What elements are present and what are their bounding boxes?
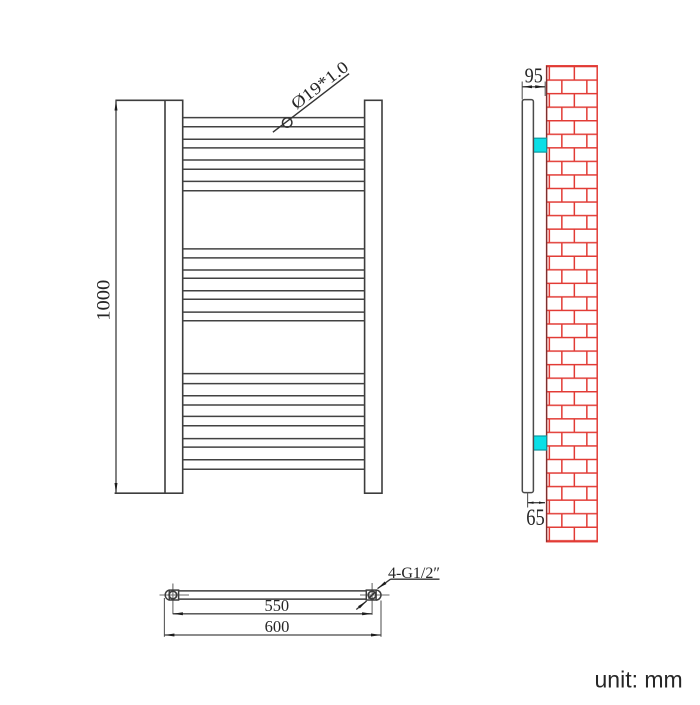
svg-text:600: 600 [265,617,290,636]
svg-text:unit: mm: unit: mm [595,667,683,693]
svg-text:550: 550 [265,596,290,615]
svg-text:65: 65 [526,505,545,530]
svg-text:1000: 1000 [94,280,115,321]
svg-text:95: 95 [525,63,543,87]
svg-text:Ø19*1.0: Ø19*1.0 [287,57,352,113]
